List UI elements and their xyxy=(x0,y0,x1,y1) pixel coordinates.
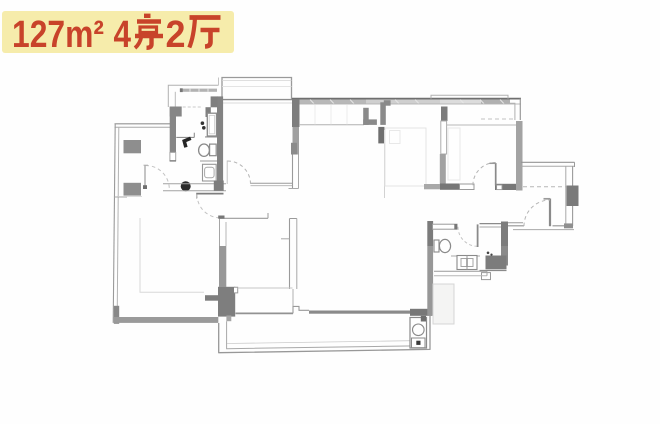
svg-text:2: 2 xyxy=(166,14,186,56)
svg-text:4: 4 xyxy=(114,14,132,56)
svg-text:127m²: 127m² xyxy=(12,14,104,56)
